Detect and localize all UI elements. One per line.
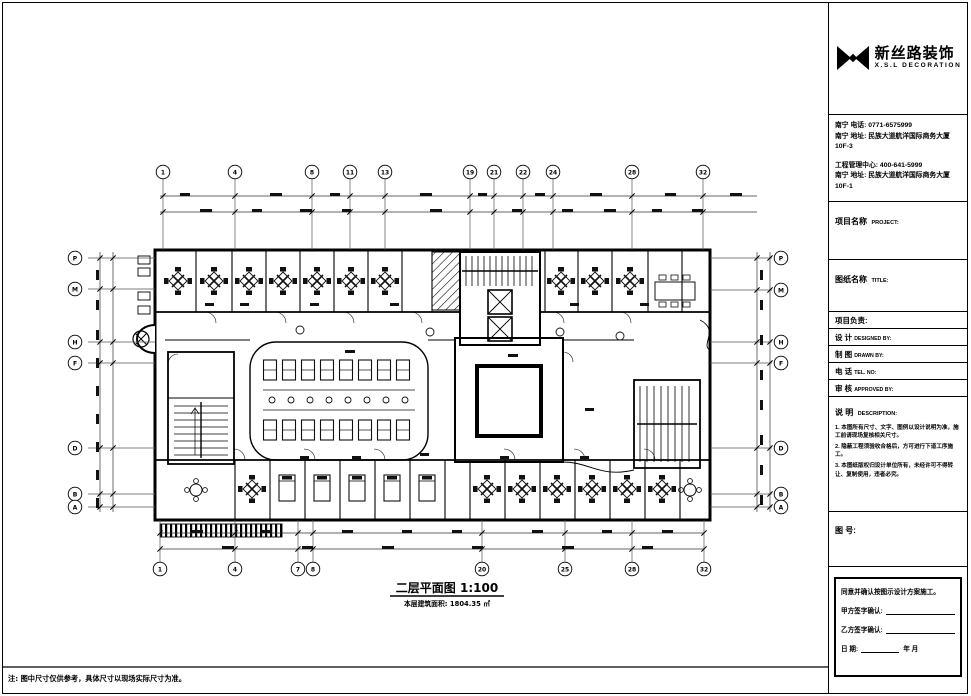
party-a-signature-line[interactable] [886,606,955,615]
row-approved-by: 审 核 APPROVED BY: [829,380,967,397]
dimension-text-blob [665,193,676,196]
contact-line-4: 南宁 地址: 民族大道航洋国际商务大厦10F-1 [835,171,962,192]
dimension-text-blob [382,546,394,549]
dimension-text-blob [96,414,99,424]
drawing-number-section: 图 号: [829,512,967,567]
grid-bubble-right-label: F [779,360,783,367]
dimension-text-blob [402,530,412,533]
plan-title: 二层平面图 1:100 [396,581,498,595]
grid-bubble-bottom-label: 20 [478,566,486,573]
booth-table-symbol [397,360,410,380]
signature-box: 同意并确认按图示设计方案施工。 甲方签字确认: 乙方签字确认: 日 期: 年 月 [834,577,962,677]
mahjong-table-symbol [200,267,228,295]
note-2: 2. 隐蔽工程须验收合格后，方可进行下道工序施工。 [835,443,961,459]
date-label: 日 期: [841,643,858,653]
date-suffix: 年 月 [903,643,918,653]
right-stair-block [634,380,700,468]
grid-bubble-top-label: 32 [699,169,707,176]
dimension-text-blob [652,209,662,212]
stair-hatch-area [432,252,462,310]
stool-symbol [383,397,389,403]
grid-bubble-bottom-label: 8 [311,566,315,573]
booth-table-symbol [378,360,391,380]
dimension-text-blob [602,530,612,533]
grid-bubble-left-label: M [72,286,78,293]
meeting-table [655,275,695,307]
dimension-text-blob [512,209,522,212]
drawn-by-label: 制 图 [835,350,852,359]
dimension-text-blob [252,209,262,212]
mahjong-table-symbol [337,267,365,295]
drawing-name-label-en: TITLE: [871,278,888,284]
dimension-text-blob [96,300,99,310]
dimension-text-blob [342,530,353,533]
bed-symbol [314,475,330,501]
booth-table-symbol [340,420,353,440]
dimension-text-blob [508,354,518,357]
mahjong-table-symbol [613,475,641,503]
planter-symbol [616,332,624,340]
dimension-text-blob [642,546,653,549]
planter-symbol [556,328,564,336]
core-stair-elevators [460,252,540,345]
note-1: 1. 本图所有尺寸、文字、图例以设计说明为准，施工前请现场复核相关尺寸。 [835,424,961,440]
dimension-text-blob [96,386,99,396]
dimension-text-blob [300,209,312,212]
dimension-text-blob [760,370,763,380]
dimension-text-blob [590,193,602,196]
dimension-text-blob [760,495,763,505]
dimension-text-blob [300,456,309,459]
company-name-en: X.S.L DECORATION [875,63,962,70]
booth-table-symbol [359,360,372,380]
dimension-text-blob [96,442,99,452]
grid-bubble-top-label: 28 [628,169,636,176]
mahjong-table-symbol [508,475,536,503]
row-project-lead: 项目负责: [829,312,967,329]
booth-table-symbol [283,420,296,440]
dimension-text-blob [262,530,272,533]
dimension-text-blob [420,193,432,196]
entry-feature [133,256,155,353]
contact-section: 南宁 电话: 0771-6575999 南宁 地址: 民族大道航洋国际商务大厦1… [829,115,967,202]
stool-symbol [364,397,370,403]
booth-table-symbol [283,360,296,380]
date-line[interactable] [861,644,899,653]
grid-bubble-left-label: H [72,339,77,346]
planter-symbol [426,328,434,336]
booth-table-symbol [359,420,372,440]
tel-label-en: TEL. NO: [854,370,876,376]
booth-table-symbol [397,420,410,440]
description-label-en: DESCRIPTION: [858,411,897,417]
designed-by-label: 设 计 [835,333,852,342]
mahjong-table-symbol [578,475,606,503]
project-name-label: 项目名称 [835,217,867,226]
stool-symbol [288,397,294,403]
mahjong-table-symbol [547,267,575,295]
mahjong-table-symbol [164,267,192,295]
grid-bubble-bottom-label: 1 [158,566,162,573]
grid-bubble-bottom-label: 32 [700,566,708,573]
approved-by-label-en: APPROVED BY: [854,387,893,393]
dimension-text-blob [662,530,673,533]
dimension-text-blob [345,350,355,353]
grid-bubble-left-label: A [73,504,78,511]
project-name-label-en: PROJECT: [871,220,898,226]
party-b-signature-line[interactable] [886,625,955,634]
booth-table-symbol [302,420,315,440]
grid-bubble-left-label: P [73,255,78,262]
left-stair-block [168,352,234,464]
grid-bubble-right-label: H [778,339,783,346]
drawing-number-label: 图 号: [835,526,856,535]
dimension-text-blob [270,193,282,196]
booth-table-symbol [264,360,277,380]
drawing-name-label: 图纸名称 [835,275,867,284]
booth-table-symbol [340,360,353,380]
dimension-text-blob [352,456,361,459]
drawing-sheet: 二层平面图 1:100 本层建筑面积: 1804.35 ㎡ 注: 图中尺寸仅供参… [0,0,971,696]
company-name-cn: 新丝路装饰 [875,46,962,61]
bed-symbol [384,475,400,501]
dimension-text-blob [96,358,99,368]
dimension-text-blob [760,335,763,345]
party-a-label: 甲方签字确认: [841,605,883,615]
grid-bubble-top-label: 19 [466,169,474,176]
dimension-text-blob [585,408,594,411]
mahjong-table-symbol [269,267,297,295]
footer-note-bar: 注: 图中尺寸仅供参考，具体尺寸以现场实际尺寸为准。 [3,667,828,683]
dimension-text-blob [342,209,351,212]
project-lead-label: 项目负责: [835,316,868,325]
grid-bubble-top-label: 1 [161,169,165,176]
dimension-text-blob [500,456,509,459]
mahjong-table-symbol [581,267,609,295]
project-name-section: 项目名称 PROJECT: [829,202,967,260]
mahjong-table-symbol [543,475,571,503]
contact-line-2: 南宁 地址: 民族大道航洋国际商务大厦10F-3 [835,132,962,153]
approved-by-label: 审 核 [835,384,852,393]
round-table-symbol [185,479,208,502]
signature-section: 同意并确认按图示设计方案施工。 甲方签字确认: 乙方签字确认: 日 期: 年 月 [829,567,967,694]
dimension-text-blob [604,209,616,212]
dimension-text-blob [535,193,545,196]
dimension-text-blob [240,303,249,306]
grid-bubble-bottom-label: 28 [628,566,636,573]
stool-symbol [307,397,313,403]
contact-line-1: 南宁 电话: 0771-6575999 [835,121,962,132]
grid-bubble-top-label: 4 [233,169,237,176]
grid-bubble-left-label: D [73,445,78,452]
mahjong-table-symbol [616,267,644,295]
dimension-text-blob [200,209,212,212]
dimension-text-blob [390,303,399,306]
stool-symbol [269,397,275,403]
grid-bubble-top-label: 13 [381,169,389,176]
grid-bubble-top-label: 24 [549,169,557,176]
grid-bubble-left-label: B [73,491,78,498]
booth-table-symbol [378,420,391,440]
bed-symbol [279,475,295,501]
dimension-text-blob [472,546,483,549]
round-table-symbol [679,479,702,502]
signature-statement: 同意并确认按图示设计方案施工。 [841,586,955,596]
mahjong-table-symbol [648,475,676,503]
dimension-text-blob [192,530,203,533]
description-label: 说 明 [835,408,853,417]
booth-table-symbol [264,420,277,440]
grid-bubble-right-label: A [779,504,784,511]
mahjong-table-symbol [303,267,331,295]
row-designed-by: 设 计 DESIGNED BY: [829,329,967,346]
bed-symbol [419,475,435,501]
plan-area-note: 本层建筑面积: 1804.35 ㎡ [404,599,490,608]
dimension-text-blob [96,270,99,280]
dimension-text-blob [760,400,763,410]
dimension-text-blob [478,193,487,196]
dimension-text-blob [562,209,573,212]
dimension-text-blob [205,303,214,306]
dimension-text-blob [640,303,649,306]
mahjong-table-symbol [238,475,266,503]
corridor-lines [165,320,710,472]
stool-symbol [326,397,332,403]
dimension-text-blob [452,530,462,533]
dimension-text-blob [310,303,319,306]
grid-bubble-bottom-label: 4 [233,566,237,573]
grid-bubble-right-label: B [779,491,784,498]
dimension-text-blob [330,193,340,196]
grid-bubble-top-label: 21 [490,169,498,176]
dimension-text-blob [730,193,742,196]
bed-symbol [349,475,365,501]
planter-symbol [296,326,304,334]
booth-table-symbol [321,420,334,440]
mahjong-table-symbol [473,475,501,503]
drawn-by-label-en: DRAWN BY: [854,353,884,359]
dimension-text-blob [532,530,543,533]
stool-symbol [402,397,408,403]
dimension-text-blob [562,546,574,549]
booth-table-symbol [302,360,315,380]
designed-by-label-en: DESIGNED BY: [854,336,891,342]
dimension-text-blob [760,465,763,475]
note-3: 3. 本图纸版权归设计单位所有，未经许可不得转让、复制使用，违者必究。 [835,462,961,478]
description-section: 说 明 DESCRIPTION: 1. 本图所有尺寸、文字、图例以设计说明为准，… [829,397,967,512]
dimension-text-blob [580,456,589,459]
dimension-text-blob [570,303,579,306]
grid-bubble-top-label: 11 [346,169,354,176]
title-block: 新丝路装饰 X.S.L DECORATION 南宁 电话: 0771-65759… [828,2,967,694]
grid-bubble-right-label: P [779,255,784,262]
dimension-text-blob [430,209,442,212]
mahjong-table-symbol [371,267,399,295]
dimension-text-blob [760,300,763,310]
xsl-bowtie-logo-icon [835,45,871,71]
mahjong-table-symbol [235,267,263,295]
grid-bubble-top-label: 22 [519,169,527,176]
dimension-text-blob [96,470,99,480]
row-tel: 电 话 TEL. NO: [829,363,967,380]
dimension-text-blob [180,193,190,196]
dimension-text-blob [692,209,703,212]
grid-bubble-right-label: M [778,287,784,294]
booth-table-symbol [321,360,334,380]
dimension-text-blob [96,330,99,340]
grid-bubble-right-label: D [779,445,784,452]
door-arcs [168,312,655,460]
dimension-text-blob [760,270,763,280]
plan-caption: 二层平面图 1:100 本层建筑面积: 1804.35 ㎡ [390,581,504,608]
grid-bubble-top-label: 8 [310,169,314,176]
dimension-text-blob [222,546,234,549]
grid-bubble-bottom-label: 25 [561,566,569,573]
company-logo-section: 新丝路装饰 X.S.L DECORATION [829,2,967,115]
tel-label: 电 话 [835,367,852,376]
drawing-name-section: 图纸名称 TITLE: [829,260,967,312]
dimension-text-blob [760,435,763,445]
grid-bubble-left-label: F [73,360,77,367]
dimension-text-blob [96,498,99,508]
stool-symbol [345,397,351,403]
footer-note-text: 注: 图中尺寸仅供参考，具体尺寸以现场实际尺寸为准。 [8,674,186,683]
dimension-text-blob [420,453,429,456]
party-b-label: 乙方签字确认: [841,624,883,634]
floor-plan-canvas: 二层平面图 1:100 本层建筑面积: 1804.35 ㎡ 注: 图中尺寸仅供参… [0,0,971,696]
dimension-text-blob [302,546,313,549]
contact-line-3: 工程管理中心: 400-641-5999 [835,161,962,172]
row-drawn-by: 制 图 DRAWN BY: [829,346,967,363]
grid-bubble-bottom-label: 7 [296,566,300,573]
